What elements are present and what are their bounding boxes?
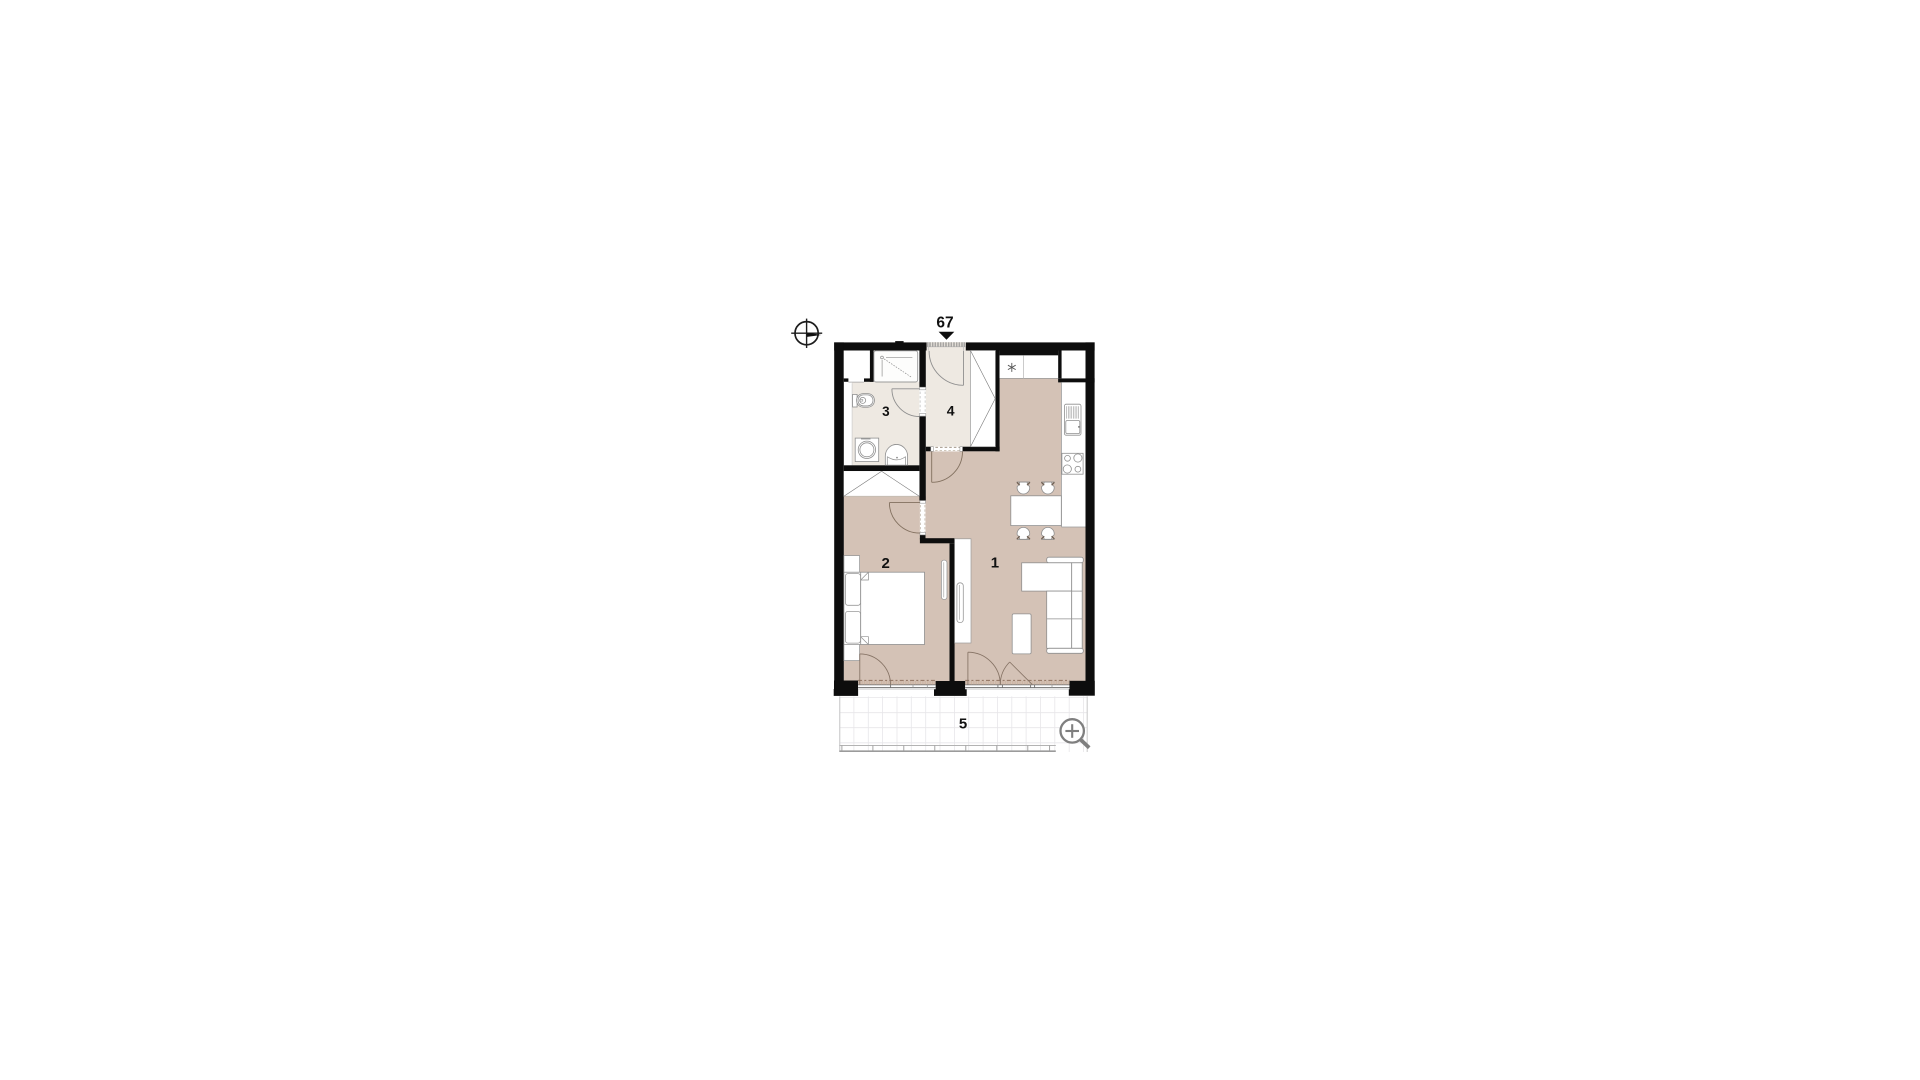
svg-text:4: 4	[947, 403, 955, 419]
svg-text:1: 1	[991, 555, 999, 572]
svg-text:2: 2	[882, 555, 890, 572]
svg-text:3: 3	[882, 404, 890, 419]
svg-text:67: 67	[936, 315, 953, 332]
svg-text:5: 5	[959, 716, 967, 733]
